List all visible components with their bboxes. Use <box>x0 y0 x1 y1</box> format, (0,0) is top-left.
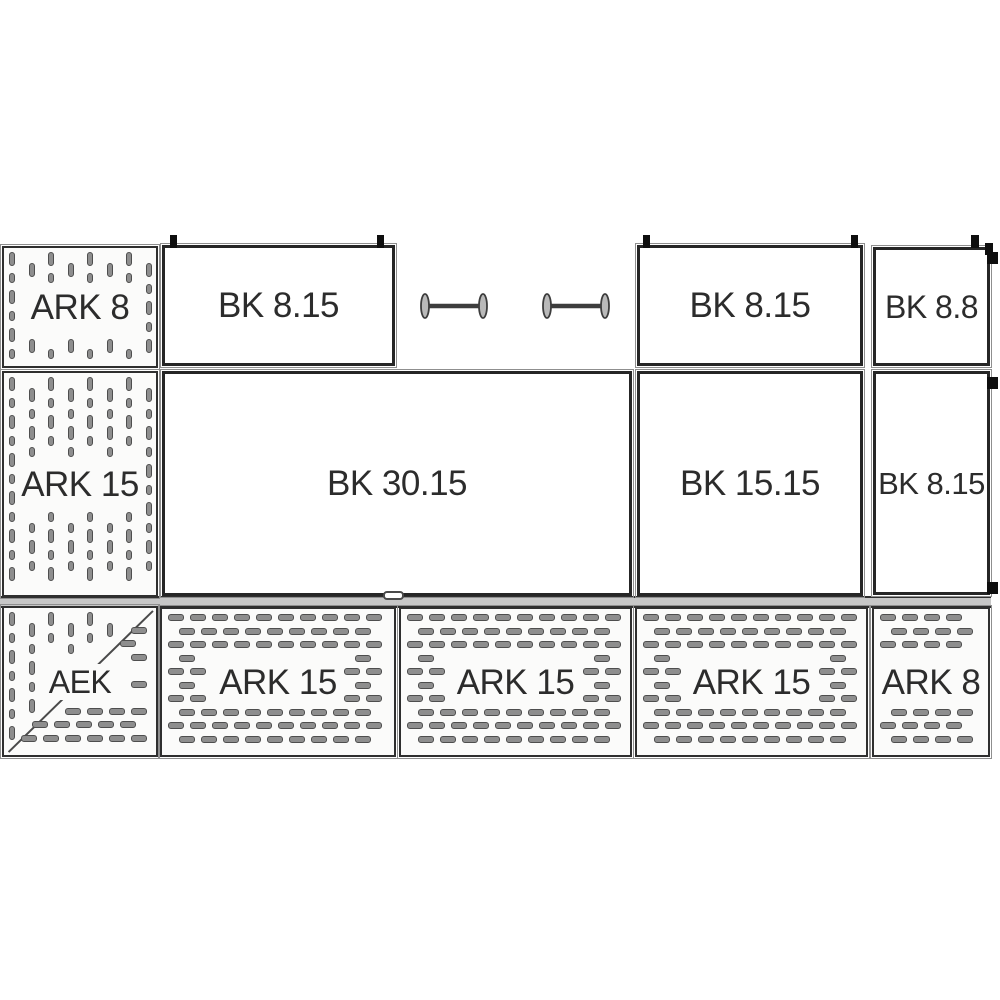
pattern-dash <box>179 628 195 635</box>
pattern-dash <box>344 641 360 648</box>
pattern-dash <box>957 709 973 716</box>
pattern-dash <box>68 263 74 277</box>
pattern-dash <box>687 614 703 621</box>
pattern-dash <box>550 709 566 716</box>
pattern-dash <box>440 736 456 743</box>
pattern-dash <box>29 540 35 554</box>
spreader-bar-icon <box>419 292 489 320</box>
pattern-dash <box>594 628 610 635</box>
pattern-dash <box>48 415 54 429</box>
pattern-dash <box>9 612 15 626</box>
pattern-dash <box>68 409 74 419</box>
pattern-dash <box>819 668 835 675</box>
panel-bk815-top-left: BK 8.15 <box>162 245 395 366</box>
pattern-dash <box>146 485 152 495</box>
pattern-dash <box>841 722 857 729</box>
pattern-dash <box>720 736 736 743</box>
pattern-dash <box>797 641 813 648</box>
pattern-dash <box>168 641 184 648</box>
pattern-dash <box>355 736 371 743</box>
pattern-dash <box>366 641 382 648</box>
pattern-dash <box>709 614 725 621</box>
pattern-dash <box>753 722 769 729</box>
pattern-dash <box>902 614 918 621</box>
pattern-dash <box>9 671 15 681</box>
pattern-dash <box>9 252 15 266</box>
joint-tab-icon <box>383 591 404 600</box>
pattern-dash <box>65 735 81 742</box>
pattern-dash <box>418 682 434 689</box>
panel-clip-icon <box>971 235 979 248</box>
pattern-dash <box>819 695 835 702</box>
pattern-dash <box>462 709 478 716</box>
pattern-dash <box>830 682 846 689</box>
pattern-dash <box>665 614 681 621</box>
pattern-dash <box>168 722 184 729</box>
panel-clip-icon <box>987 377 998 389</box>
pattern-dash <box>9 436 15 446</box>
pattern-dash <box>68 339 74 353</box>
panel-clip-icon <box>987 582 998 594</box>
panel-label: ARK 15 <box>219 665 337 700</box>
pattern-dash <box>572 736 588 743</box>
pattern-dash <box>322 641 338 648</box>
pattern-dash <box>665 722 681 729</box>
panel-clip-icon <box>643 235 650 248</box>
pattern-dash <box>753 641 769 648</box>
pattern-dash <box>48 550 54 560</box>
pattern-dash <box>107 540 113 554</box>
panel-ark8-left: ARK 8 <box>2 246 158 368</box>
pattern-dash <box>87 398 93 408</box>
pattern-dash <box>322 722 338 729</box>
pattern-dash <box>87 415 93 429</box>
pattern-dash <box>418 655 434 662</box>
pattern-dash <box>366 668 382 675</box>
pattern-dash <box>643 641 659 648</box>
pattern-dash <box>440 709 456 716</box>
pattern-dash <box>880 614 896 621</box>
pattern-dash <box>245 628 261 635</box>
pattern-dash <box>902 722 918 729</box>
pattern-dash <box>830 736 846 743</box>
pattern-dash <box>223 736 239 743</box>
pattern-dash <box>234 641 250 648</box>
pattern-dash <box>179 709 195 716</box>
pattern-dash <box>126 252 132 266</box>
panel-bk88-top: BK 8.8 <box>873 247 990 366</box>
pattern-dash <box>87 273 93 283</box>
pattern-dash <box>107 339 113 353</box>
pattern-dash <box>753 614 769 621</box>
pattern-dash <box>29 339 35 353</box>
pattern-dash <box>484 628 500 635</box>
pattern-dash <box>9 650 15 664</box>
pattern-dash <box>676 709 692 716</box>
pattern-dash <box>146 301 152 315</box>
pattern-dash <box>109 735 125 742</box>
pattern-dash <box>68 426 74 440</box>
pattern-dash <box>98 721 114 728</box>
pattern-dash <box>267 628 283 635</box>
pattern-dash <box>665 695 681 702</box>
pattern-dash <box>9 512 15 522</box>
pattern-dash <box>9 453 15 467</box>
pattern-dash <box>87 529 93 543</box>
pattern-dash <box>168 614 184 621</box>
panel-ark15-left: ARK 15 <box>2 371 158 597</box>
pattern-dash <box>9 377 15 391</box>
pattern-dash <box>29 561 35 571</box>
pattern-dash <box>654 736 670 743</box>
panel-label: ARK 15 <box>693 665 811 700</box>
pattern-dash <box>819 722 835 729</box>
pattern-dash <box>786 628 802 635</box>
pattern-dash <box>146 426 152 440</box>
pattern-dash <box>289 628 305 635</box>
pattern-dash <box>366 614 382 621</box>
pattern-dash <box>146 464 152 478</box>
pattern-dash <box>48 633 54 643</box>
pattern-dash <box>709 641 725 648</box>
pattern-dash <box>957 628 973 635</box>
pattern-dash <box>201 709 217 716</box>
pattern-dash <box>120 640 136 647</box>
pattern-dash <box>126 529 132 543</box>
pattern-dash <box>698 736 714 743</box>
pattern-dash <box>68 447 74 457</box>
pattern-dash <box>107 523 113 533</box>
pattern-dash <box>48 529 54 543</box>
pattern-dash <box>665 641 681 648</box>
pattern-dash <box>9 328 15 342</box>
pattern-dash <box>68 561 74 571</box>
pattern-dash <box>880 641 896 648</box>
panel-label: ARK 8 <box>882 665 981 700</box>
pattern-dash <box>68 388 74 402</box>
pattern-dash <box>212 641 228 648</box>
pattern-dash <box>665 668 681 675</box>
pattern-dash <box>146 263 152 277</box>
pattern-dash <box>830 655 846 662</box>
pattern-dash <box>344 668 360 675</box>
pattern-dash <box>946 614 962 621</box>
pattern-dash <box>742 736 758 743</box>
pattern-dash <box>517 722 533 729</box>
pattern-dash <box>344 614 360 621</box>
pattern-dash <box>256 641 272 648</box>
pattern-dash <box>643 614 659 621</box>
pattern-dash <box>594 736 610 743</box>
pattern-dash <box>946 722 962 729</box>
pattern-dash <box>190 722 206 729</box>
pattern-dash <box>9 415 15 429</box>
pattern-dash <box>484 736 500 743</box>
panel-label: BK 8.8 <box>885 291 978 323</box>
pattern-dash <box>495 614 511 621</box>
pattern-dash <box>107 426 113 440</box>
pattern-dash <box>146 540 152 554</box>
pattern-dash <box>572 628 588 635</box>
pattern-dash <box>654 682 670 689</box>
pattern-dash <box>924 722 940 729</box>
pattern-dash <box>179 655 195 662</box>
panel-bk815-mid-right: BK 8.15 <box>873 371 990 595</box>
pattern-dash <box>21 735 37 742</box>
pattern-dash <box>344 722 360 729</box>
pattern-dash <box>764 709 780 716</box>
pattern-dash <box>29 699 35 713</box>
pattern-dash <box>245 736 261 743</box>
pattern-dash <box>407 641 423 648</box>
pattern-dash <box>594 682 610 689</box>
pattern-dash <box>126 273 132 283</box>
formwork-panel-layout-diagram: ARK 8 ARK 15 AEK BK 8.15 BK 8.15 BK 8.8 … <box>0 0 1000 1000</box>
pattern-dash <box>355 655 371 662</box>
pattern-dash <box>146 284 152 294</box>
pattern-dash <box>311 736 327 743</box>
pattern-dash <box>126 550 132 560</box>
pattern-dash <box>924 641 940 648</box>
pattern-dash <box>473 641 489 648</box>
pattern-dash <box>29 388 35 402</box>
pattern-dash <box>605 614 621 621</box>
pattern-dash <box>267 736 283 743</box>
pattern-dash <box>120 721 136 728</box>
pattern-dash <box>583 695 599 702</box>
pattern-dash <box>819 614 835 621</box>
pattern-dash <box>654 655 670 662</box>
pattern-dash <box>9 726 15 740</box>
pattern-dash <box>462 628 478 635</box>
pattern-dash <box>506 628 522 635</box>
pattern-dash <box>764 736 780 743</box>
pattern-dash <box>654 709 670 716</box>
pattern-dash <box>786 709 802 716</box>
pattern-dash <box>245 709 261 716</box>
pattern-dash <box>913 709 929 716</box>
pattern-dash <box>935 709 951 716</box>
pattern-dash <box>407 695 423 702</box>
panel-ark15-bottom-2: ARK 15 <box>399 607 632 757</box>
pattern-dash <box>256 722 272 729</box>
panel-clip-icon <box>377 235 384 248</box>
pattern-dash <box>764 628 780 635</box>
pattern-dash <box>126 349 132 359</box>
pattern-dash <box>891 736 907 743</box>
pattern-dash <box>742 709 758 716</box>
pattern-dash <box>107 623 113 637</box>
pattern-dash <box>9 311 15 321</box>
pattern-dash <box>76 721 92 728</box>
pattern-dash <box>605 668 621 675</box>
pattern-dash <box>841 641 857 648</box>
pattern-dash <box>880 722 896 729</box>
panel-ark15-bottom-3: ARK 15 <box>635 607 868 757</box>
pattern-dash <box>539 641 555 648</box>
pattern-dash <box>190 695 206 702</box>
pattern-dash <box>366 695 382 702</box>
pattern-dash <box>190 641 206 648</box>
pattern-dash <box>29 263 35 277</box>
pattern-dash <box>333 628 349 635</box>
pattern-dash <box>190 614 206 621</box>
pattern-dash <box>643 722 659 729</box>
pattern-dash <box>9 491 15 505</box>
pattern-dash <box>830 628 846 635</box>
pattern-dash <box>267 709 283 716</box>
pattern-dash <box>126 415 132 429</box>
pattern-dash <box>54 721 70 728</box>
pattern-dash <box>146 523 152 533</box>
pattern-dash <box>698 709 714 716</box>
pattern-dash <box>87 550 93 560</box>
pattern-dash <box>891 628 907 635</box>
pattern-dash <box>731 722 747 729</box>
pattern-dash <box>87 735 103 742</box>
pattern-dash <box>87 708 103 715</box>
pattern-dash <box>775 722 791 729</box>
pattern-dash <box>418 736 434 743</box>
pattern-dash <box>775 641 791 648</box>
pattern-dash <box>572 709 588 716</box>
pattern-dash <box>561 641 577 648</box>
pattern-dash <box>407 668 423 675</box>
pattern-dash <box>550 736 566 743</box>
pattern-dash <box>48 612 54 626</box>
pattern-dash <box>808 709 824 716</box>
pattern-dash <box>131 708 147 715</box>
pattern-dash <box>201 628 217 635</box>
pattern-dash <box>29 644 35 654</box>
pattern-dash <box>107 263 113 277</box>
pattern-dash <box>407 614 423 621</box>
pattern-dash <box>68 623 74 637</box>
panel-clip-icon <box>851 235 858 248</box>
pattern-dash <box>355 628 371 635</box>
pattern-dash <box>583 614 599 621</box>
pattern-dash <box>68 644 74 654</box>
pattern-dash <box>278 614 294 621</box>
pattern-dash <box>924 614 940 621</box>
pattern-dash <box>87 436 93 446</box>
pattern-dash <box>223 709 239 716</box>
pattern-dash <box>539 614 555 621</box>
pattern-dash <box>462 736 478 743</box>
pattern-dash <box>643 668 659 675</box>
pattern-dash <box>344 695 360 702</box>
pattern-dash <box>87 252 93 266</box>
pattern-dash <box>687 722 703 729</box>
pattern-dash <box>786 736 802 743</box>
pattern-dash <box>506 709 522 716</box>
pattern-dash <box>278 722 294 729</box>
pattern-dash <box>333 709 349 716</box>
pattern-dash <box>957 736 973 743</box>
pattern-dash <box>355 682 371 689</box>
pattern-dash <box>146 339 152 353</box>
pattern-dash <box>484 709 500 716</box>
panel-bk3015: BK 30.15 <box>162 371 632 596</box>
pattern-dash <box>841 614 857 621</box>
panel-label: BK 15.15 <box>680 466 820 501</box>
pattern-dash <box>935 628 951 635</box>
pattern-dash <box>9 633 15 643</box>
panel-label: ARK 15 <box>21 467 139 502</box>
pattern-dash <box>146 447 152 457</box>
pattern-dash <box>48 349 54 359</box>
pattern-dash <box>429 641 445 648</box>
pattern-dash <box>65 708 81 715</box>
pattern-dash <box>68 523 74 533</box>
pattern-dash <box>775 614 791 621</box>
pattern-dash <box>9 550 15 560</box>
pattern-dash <box>48 377 54 391</box>
pattern-dash <box>451 614 467 621</box>
pattern-dash <box>201 736 217 743</box>
pattern-dash <box>107 409 113 419</box>
pattern-dash <box>407 722 423 729</box>
spreader-bar-icon <box>541 292 611 320</box>
pattern-dash <box>528 709 544 716</box>
pattern-dash <box>451 641 467 648</box>
pattern-dash <box>550 628 566 635</box>
pattern-dash <box>355 709 371 716</box>
pattern-dash <box>473 614 489 621</box>
pattern-dash <box>333 736 349 743</box>
pattern-dash <box>676 628 692 635</box>
pattern-dash <box>126 512 132 522</box>
pattern-dash <box>583 668 599 675</box>
pattern-dash <box>212 722 228 729</box>
pattern-dash <box>913 628 929 635</box>
pattern-dash <box>731 641 747 648</box>
pattern-dash <box>29 661 35 675</box>
pattern-dash <box>311 709 327 716</box>
pattern-dash <box>146 502 152 516</box>
pattern-dash <box>731 614 747 621</box>
panel-label: BK 30.15 <box>327 466 467 501</box>
pattern-dash <box>797 614 813 621</box>
pattern-dash <box>561 722 577 729</box>
pattern-dash <box>720 709 736 716</box>
pattern-dash <box>539 722 555 729</box>
pattern-dash <box>179 682 195 689</box>
pattern-dash <box>913 736 929 743</box>
pattern-dash <box>48 436 54 446</box>
pattern-dash <box>29 426 35 440</box>
pattern-dash <box>517 641 533 648</box>
pattern-dash <box>676 736 692 743</box>
pattern-dash <box>146 561 152 571</box>
pattern-dash <box>841 668 857 675</box>
pattern-dash <box>709 722 725 729</box>
pattern-dash <box>43 735 59 742</box>
pattern-dash <box>528 736 544 743</box>
pattern-dash <box>289 709 305 716</box>
pattern-dash <box>289 736 305 743</box>
pattern-dash <box>146 322 152 332</box>
pattern-dash <box>32 721 48 728</box>
pattern-dash <box>190 668 206 675</box>
pattern-dash <box>9 273 15 283</box>
pattern-dash <box>223 628 239 635</box>
pattern-dash <box>9 567 15 581</box>
pattern-dash <box>9 529 15 543</box>
pattern-dash <box>29 623 35 637</box>
pattern-dash <box>234 722 250 729</box>
panel-ark8-bottom: ARK 8 <box>872 607 990 757</box>
